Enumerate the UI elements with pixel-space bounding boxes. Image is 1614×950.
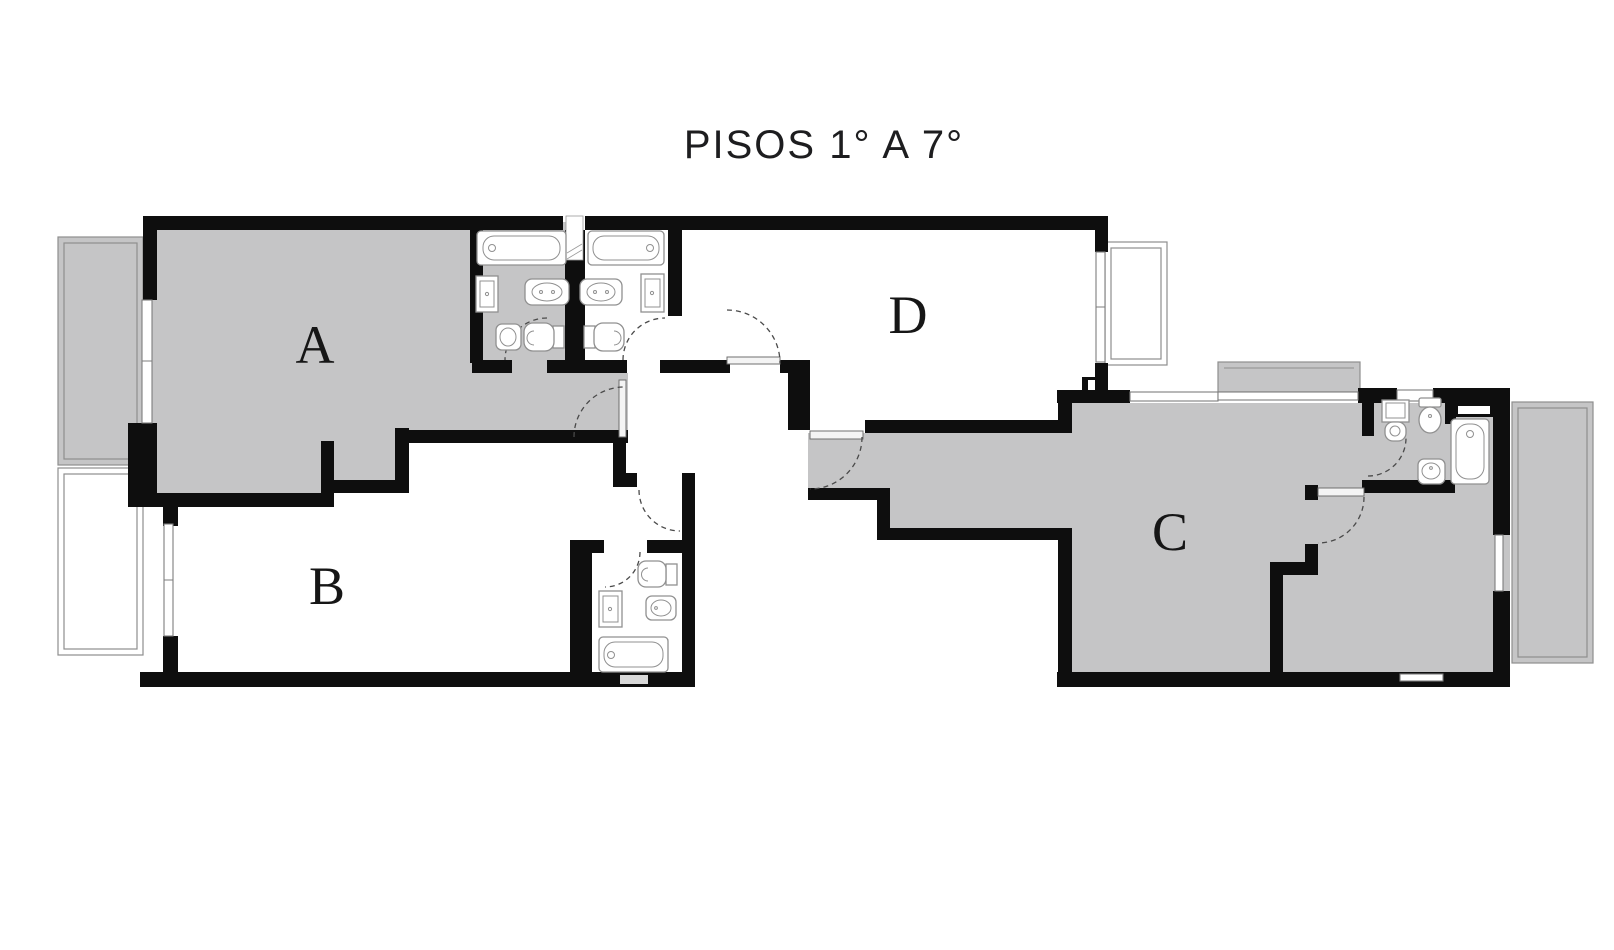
bidet-icon (646, 596, 676, 620)
unit-floors (150, 222, 1510, 672)
window-ledge (1218, 362, 1360, 392)
unit-b-label: B (309, 556, 345, 616)
bath-b-door-arc (605, 552, 640, 587)
plan-title: PISOS 1° A 7° (684, 123, 964, 167)
vanity-icon (599, 591, 622, 627)
unit-b-entry-door-arc (639, 490, 680, 531)
bidet-icon (1418, 459, 1445, 484)
unit-a-entry-door (619, 380, 626, 437)
bathroom-b-fixtures (599, 561, 677, 672)
bathroom-d-fixtures (580, 231, 664, 351)
vanity-icon (476, 276, 498, 312)
unit-c-window-south (1400, 674, 1443, 681)
toilet-icon (584, 323, 624, 351)
vanity-sink-icon (1382, 400, 1409, 441)
unit-c-window-north-2 (1218, 392, 1358, 400)
unit-c-window-north-1 (1130, 392, 1218, 401)
air-shaft (566, 216, 583, 260)
sink-icon (580, 279, 622, 305)
unit-a-label: A (296, 315, 335, 375)
unit-c-window-east (1495, 535, 1503, 591)
unit-c-entry-door (810, 431, 863, 439)
unit-d-label: D (889, 285, 928, 345)
bathtub-icon (588, 231, 664, 265)
bathtub-icon (477, 231, 566, 265)
unit-c-bedroom-door (1318, 488, 1364, 496)
unit-d-entry-door (727, 357, 780, 364)
bath-b-sill (620, 675, 648, 684)
unit-d-balcony (1105, 242, 1167, 365)
bidet-icon (496, 324, 521, 350)
floorplan-page: A B C D PISOS 1° A 7° (0, 0, 1614, 950)
sink-icon (525, 279, 569, 305)
unit-c-label: C (1152, 502, 1188, 562)
vanity-icon (641, 274, 664, 312)
floorplan-canvas: A B C D PISOS 1° A 7° (0, 0, 1614, 950)
bathtub-icon (1451, 419, 1489, 484)
bath-d-door-arc (623, 318, 665, 360)
unit-c-balcony (1512, 402, 1593, 663)
toilet-icon (1419, 398, 1441, 433)
bathtub-icon (599, 637, 668, 672)
toilet-icon (638, 561, 677, 587)
toilet-icon (524, 323, 564, 351)
